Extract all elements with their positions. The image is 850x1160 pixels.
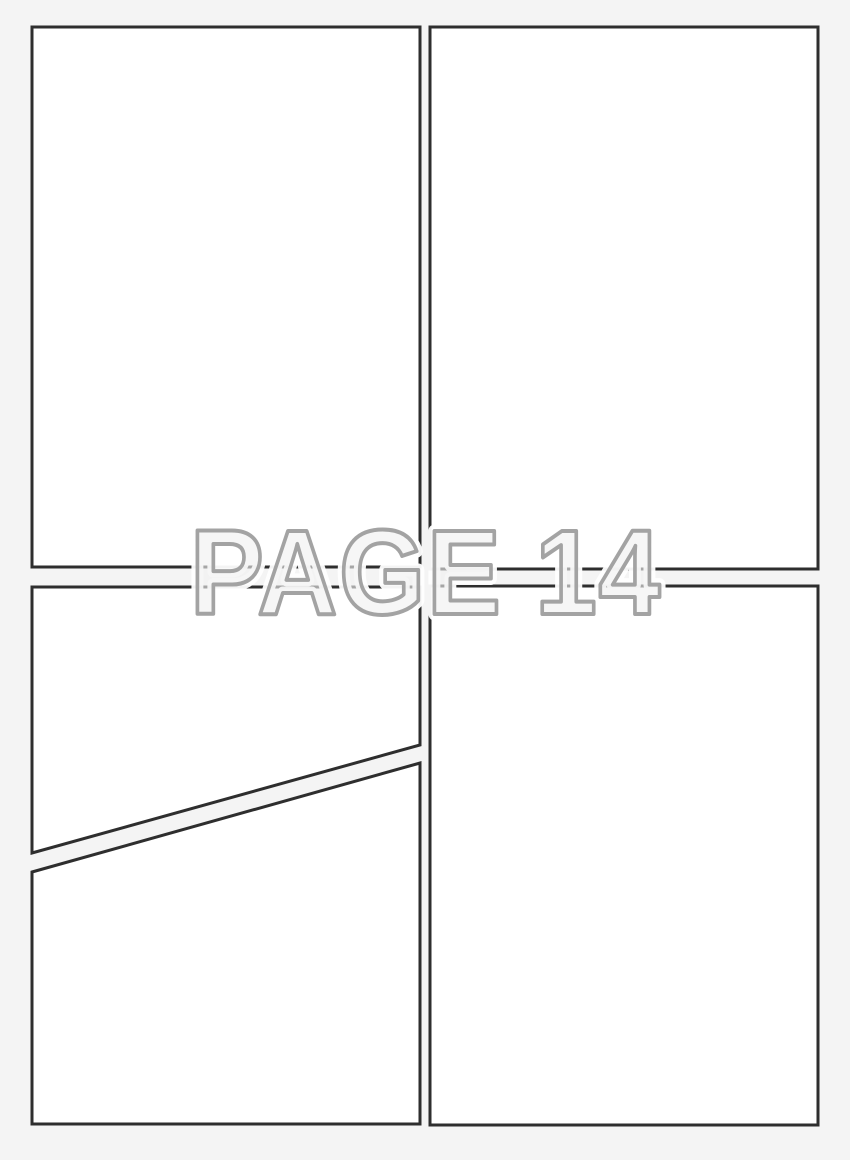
page-number-watermark: PAGE 14 PAGE 14 PAGE 14 (190, 504, 662, 640)
comic-page-canvas: PAGE 14 PAGE 14 PAGE 14 (0, 0, 850, 1160)
panel-top-left (32, 27, 420, 567)
comic-page-template: PAGE 14 PAGE 14 PAGE 14 (0, 0, 850, 1160)
panel-top-right (430, 27, 818, 569)
watermark-outline: PAGE 14 (190, 504, 662, 640)
panel-bottom-right (430, 586, 818, 1125)
